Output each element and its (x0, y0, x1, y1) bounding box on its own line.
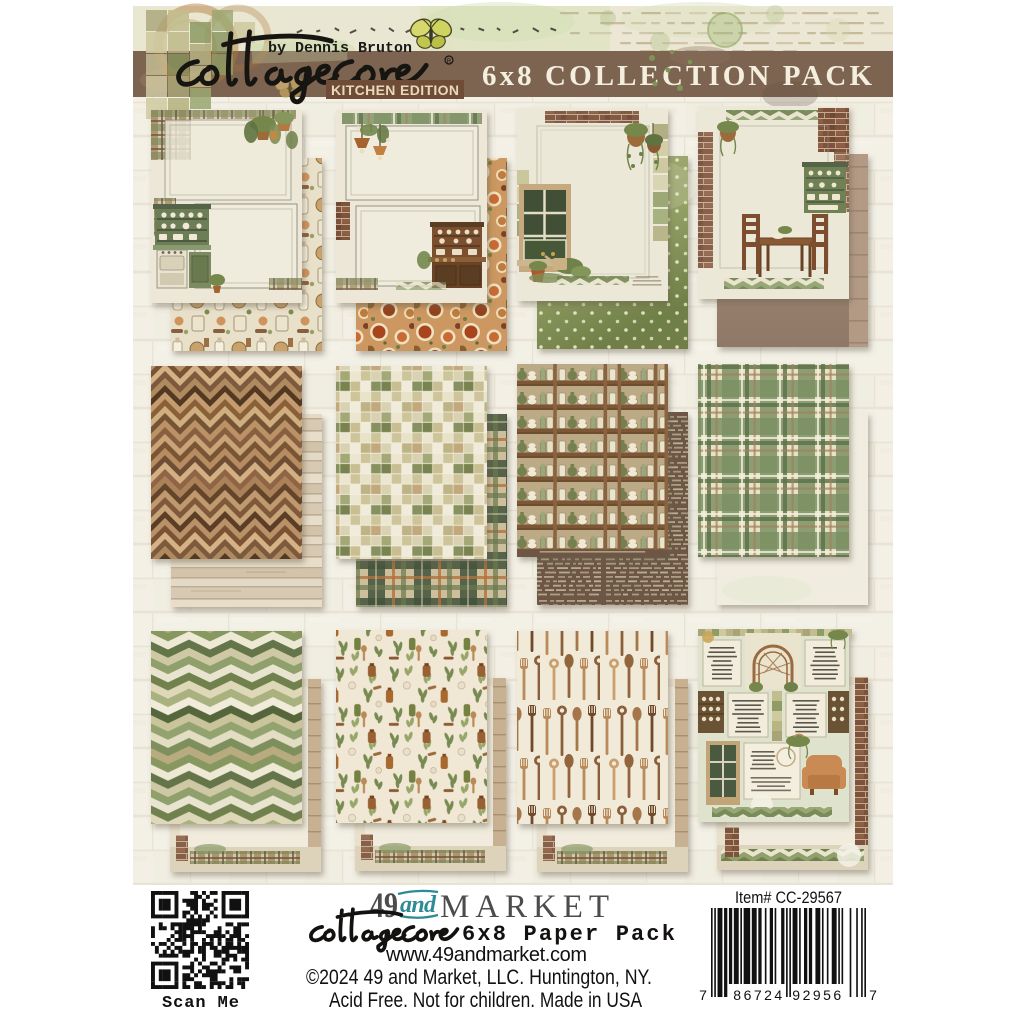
svg-text:Item# CC-29567: Item# CC-29567 (735, 888, 842, 907)
svg-text:R: R (447, 59, 452, 65)
svg-text:49: 49 (370, 885, 398, 925)
svg-text:by Dennis Bruton: by Dennis Bruton (268, 40, 412, 57)
svg-text:7: 7 (699, 987, 707, 1003)
svg-text:www.49andmarket.com: www.49andmarket.com (385, 944, 587, 966)
svg-text:Acid Free. Not for children. M: Acid Free. Not for children. Made in USA (329, 989, 642, 1012)
svg-text:©2024 49 and Market, LLC. Hunt: ©2024 49 and Market, LLC. Huntington, NY… (306, 966, 652, 989)
svg-text:92956: 92956 (792, 987, 843, 1003)
svg-text:and: and (400, 892, 437, 918)
svg-text:KITCHEN EDITION: KITCHEN EDITION (331, 82, 459, 98)
svg-text:7: 7 (869, 987, 877, 1003)
svg-text:86724: 86724 (733, 987, 784, 1003)
svg-text:Scan Me: Scan Me (162, 994, 239, 1013)
